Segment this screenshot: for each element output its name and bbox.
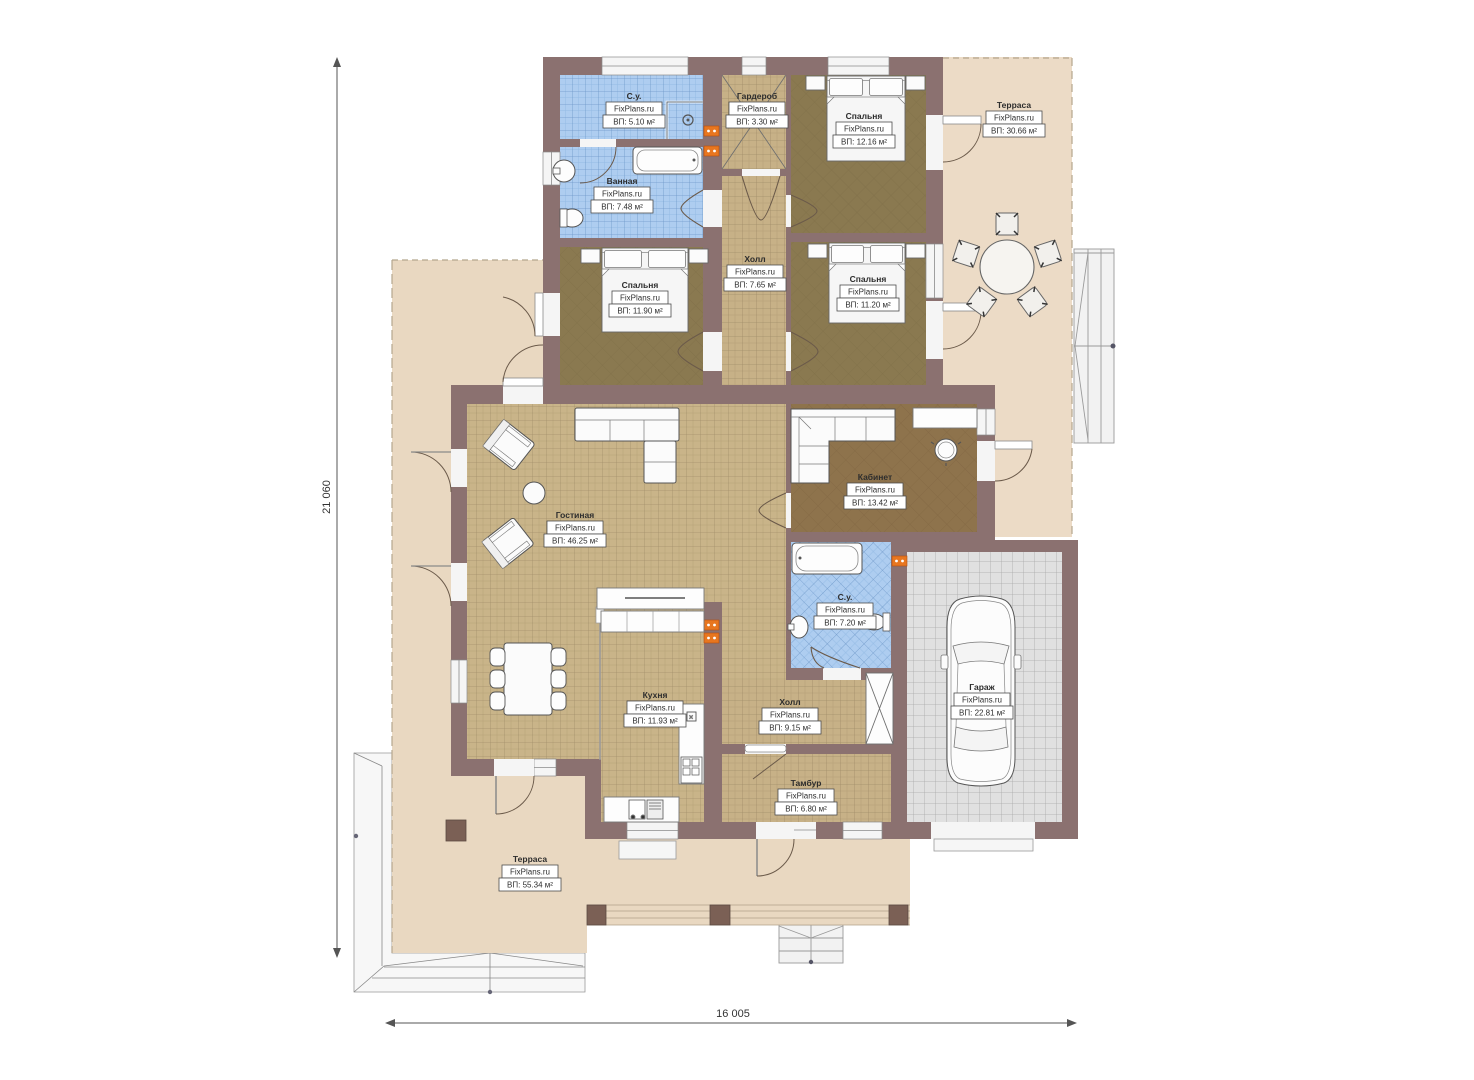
svg-text:ВП: 3.30 м²: ВП: 3.30 м² [736, 118, 778, 127]
svg-text:FixPlans.ru: FixPlans.ru [855, 486, 895, 495]
svg-text:FixPlans.ru: FixPlans.ru [735, 268, 775, 277]
svg-text:FixPlans.ru: FixPlans.ru [770, 711, 810, 720]
svg-text:FixPlans.ru: FixPlans.ru [844, 125, 884, 134]
svg-text:Тамбур: Тамбур [791, 778, 822, 788]
svg-text:FixPlans.ru: FixPlans.ru [602, 190, 642, 199]
svg-text:Терраса: Терраса [513, 854, 547, 864]
svg-text:FixPlans.ru: FixPlans.ru [786, 792, 826, 801]
svg-text:ВП: 55.34 м²: ВП: 55.34 м² [507, 881, 553, 890]
svg-text:ВП: 12.16 м²: ВП: 12.16 м² [841, 138, 887, 147]
svg-text:Ванная: Ванная [607, 176, 638, 186]
svg-text:Спальня: Спальня [850, 274, 887, 284]
svg-text:ВП: 9.15 м²: ВП: 9.15 м² [769, 724, 811, 733]
svg-text:Гардероб: Гардероб [737, 91, 777, 101]
svg-text:ВП: 7.20 м²: ВП: 7.20 м² [824, 619, 866, 628]
svg-text:FixPlans.ru: FixPlans.ru [510, 868, 550, 877]
svg-text:Кухня: Кухня [643, 690, 668, 700]
svg-text:ВП: 46.25 м²: ВП: 46.25 м² [552, 537, 598, 546]
svg-text:ВП: 5.10 м²: ВП: 5.10 м² [613, 118, 655, 127]
svg-text:ВП: 22.81 м²: ВП: 22.81 м² [959, 709, 1005, 718]
svg-text:Спальня: Спальня [622, 280, 659, 290]
svg-text:Холл: Холл [779, 697, 800, 707]
svg-text:FixPlans.ru: FixPlans.ru [737, 105, 777, 114]
svg-text:FixPlans.ru: FixPlans.ru [994, 114, 1034, 123]
svg-text:ВП: 7.48 м²: ВП: 7.48 м² [601, 203, 643, 212]
svg-text:FixPlans.ru: FixPlans.ru [635, 704, 675, 713]
svg-text:С.у.: С.у. [838, 592, 853, 602]
svg-text:ВП: 13.42 м²: ВП: 13.42 м² [852, 499, 898, 508]
svg-text:С.у.: С.у. [627, 91, 642, 101]
svg-text:16 005: 16 005 [716, 1008, 750, 1020]
svg-text:ВП: 11.93 м²: ВП: 11.93 м² [632, 717, 678, 726]
svg-text:FixPlans.ru: FixPlans.ru [848, 288, 888, 297]
svg-text:Гостиная: Гостиная [556, 510, 594, 520]
svg-text:ВП: 11.20 м²: ВП: 11.20 м² [845, 301, 891, 310]
svg-text:ВП: 11.90 м²: ВП: 11.90 м² [617, 307, 663, 316]
svg-text:×: × [689, 715, 693, 722]
svg-text:Холл: Холл [744, 254, 765, 264]
svg-text:FixPlans.ru: FixPlans.ru [614, 105, 654, 114]
svg-text:Гараж: Гараж [969, 682, 995, 692]
svg-text:FixPlans.ru: FixPlans.ru [555, 524, 595, 533]
svg-text:FixPlans.ru: FixPlans.ru [620, 294, 660, 303]
svg-text:21 060: 21 060 [321, 480, 333, 514]
svg-text:FixPlans.ru: FixPlans.ru [962, 696, 1002, 705]
svg-text:ВП: 30.66 м²: ВП: 30.66 м² [991, 127, 1037, 136]
svg-text:ВП: 7.65 м²: ВП: 7.65 м² [734, 281, 776, 290]
svg-text:Кабинет: Кабинет [858, 472, 892, 482]
svg-text:Терраса: Терраса [997, 100, 1031, 110]
svg-text:FixPlans.ru: FixPlans.ru [825, 606, 865, 615]
svg-text:ВП: 6.80 м²: ВП: 6.80 м² [785, 805, 827, 814]
svg-text:Спальня: Спальня [846, 111, 883, 121]
